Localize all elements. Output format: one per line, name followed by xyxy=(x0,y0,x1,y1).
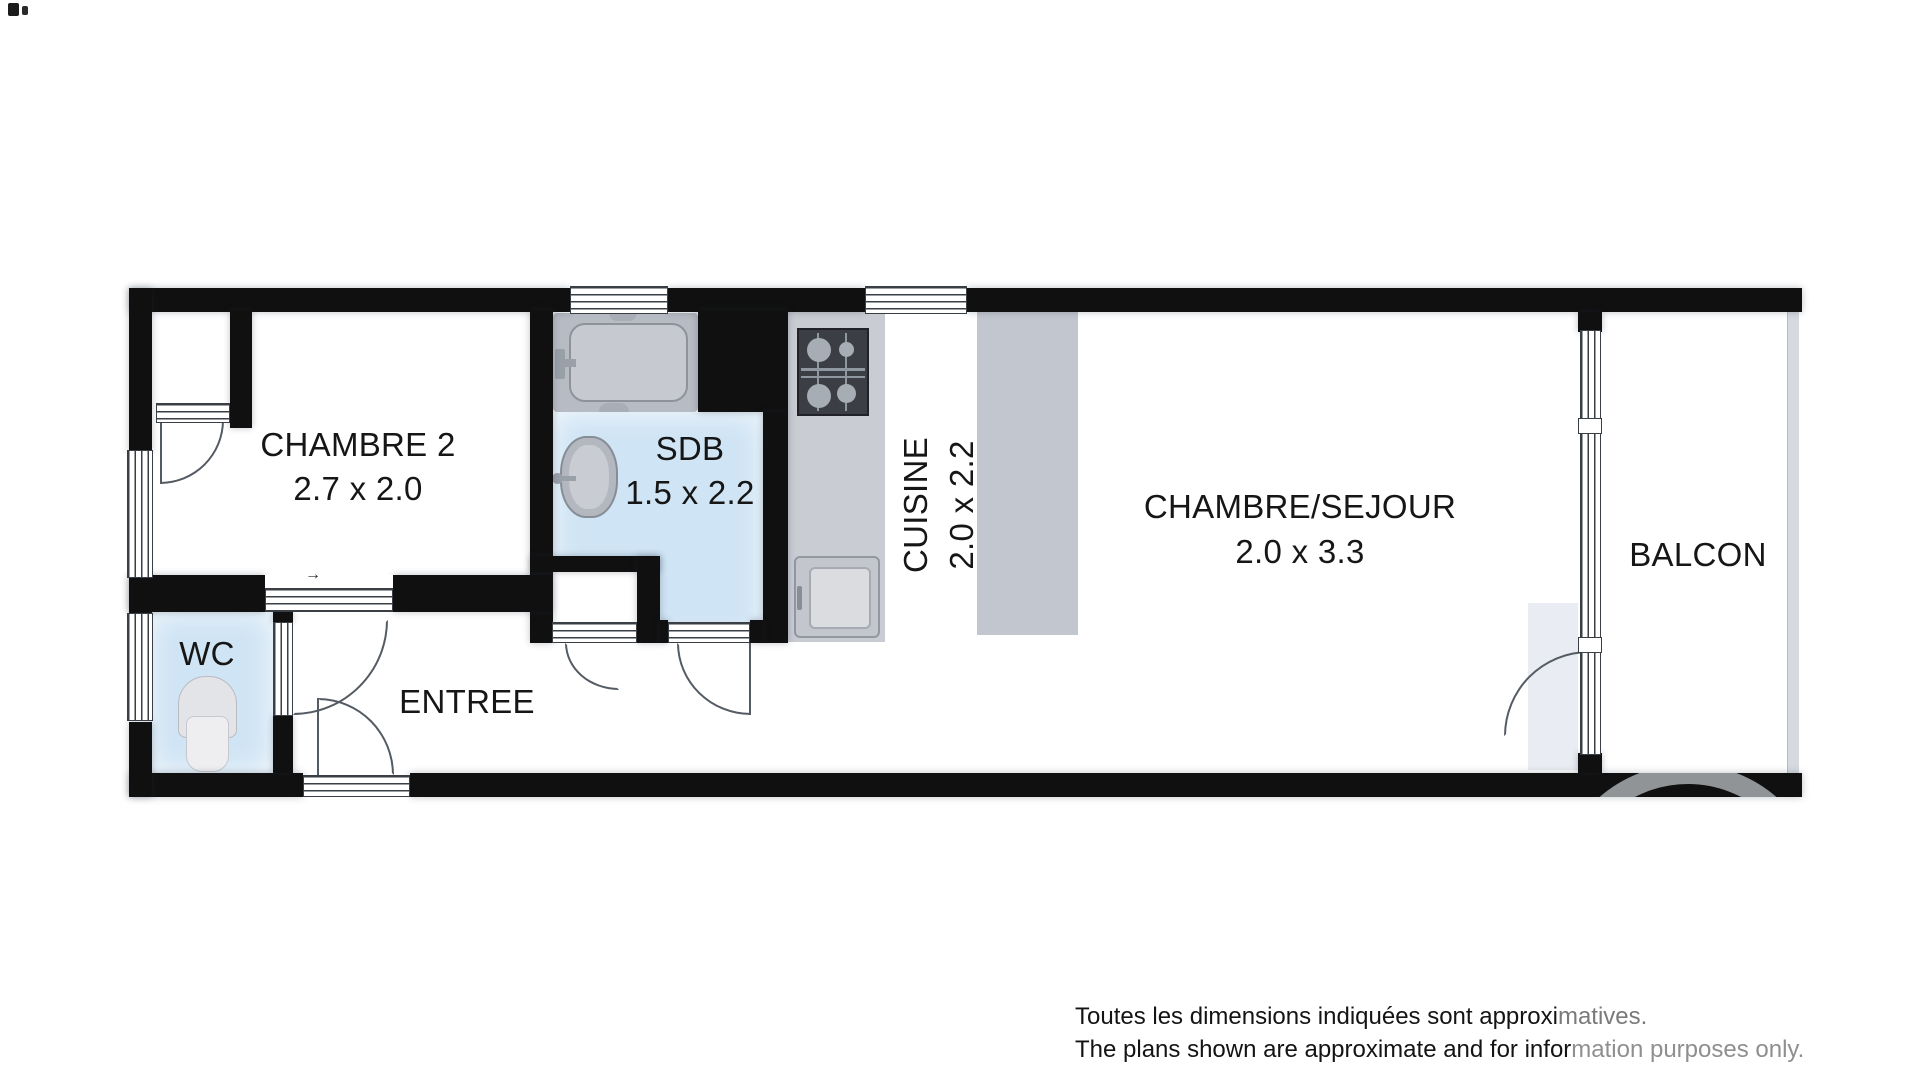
wc-door xyxy=(273,622,293,716)
room-name: CHAMBRE 2 xyxy=(183,423,533,467)
page-corner-mark xyxy=(22,6,28,15)
balcony-window-wall xyxy=(1580,330,1601,755)
watermark-logo xyxy=(1555,773,1802,797)
watermark-ring-icon xyxy=(1555,773,1802,797)
wall-segment xyxy=(1578,753,1602,773)
closet-door xyxy=(156,403,230,423)
disclaimer-text: Toutes les dimensions indiquées sont app… xyxy=(1075,1003,1558,1030)
kitchen-sink xyxy=(794,556,880,638)
bathtub-handle xyxy=(609,313,637,321)
wall-segment xyxy=(637,556,660,643)
wall-segment xyxy=(668,288,865,312)
sink-tap xyxy=(560,476,576,481)
wall-segment xyxy=(230,310,252,428)
sdb-closet-floor xyxy=(552,572,637,622)
window xyxy=(570,286,668,314)
wall-segment xyxy=(393,575,552,612)
sliding-door xyxy=(265,588,393,612)
stove-burner xyxy=(807,338,831,362)
bathtub-basin xyxy=(569,323,688,402)
stove-burner xyxy=(839,342,854,357)
window xyxy=(127,450,153,578)
bathtub-handle xyxy=(599,403,629,412)
page-corner-mark xyxy=(8,3,19,16)
disclaimer-text-faded: matives. xyxy=(1558,1003,1647,1030)
door-leaf xyxy=(749,643,751,715)
sdb-door xyxy=(668,622,750,643)
disclaimer: Toutes les dimensions indiquées sont app… xyxy=(1075,1000,1804,1066)
room-label-balcon: BALCON xyxy=(1608,533,1788,577)
sliding-door-arrow-icon: → xyxy=(296,566,330,584)
wall-segment xyxy=(273,612,293,622)
room-label-cuisine: CUISINE xyxy=(896,425,936,585)
closet-door xyxy=(552,622,637,643)
stove xyxy=(797,328,869,416)
room-label-sejour: CHAMBRE/SEJOUR 2.0 x 3.3 xyxy=(1120,484,1480,574)
kitchen-sink-basin xyxy=(809,567,871,629)
kitchen-sink-handle xyxy=(797,586,802,610)
room-label-chambre2: CHAMBRE 2 2.7 x 2.0 xyxy=(183,423,533,511)
room-name: CHAMBRE/SEJOUR xyxy=(1120,484,1480,529)
wall-segment xyxy=(273,716,293,773)
window-jamb xyxy=(1578,637,1602,653)
stove-burner xyxy=(807,384,831,408)
bathtub-faucet xyxy=(562,359,576,367)
door-leaf xyxy=(317,698,319,775)
room-name: SDB xyxy=(610,427,770,471)
stove-burner xyxy=(837,384,856,403)
wall-segment xyxy=(129,288,152,452)
wall-segment xyxy=(129,773,303,797)
room-label-cuisine-dimensions: 2.0 x 2.2 xyxy=(942,425,982,585)
toilet-bowl xyxy=(186,716,229,772)
wall-segment xyxy=(1578,312,1602,332)
wardrobe xyxy=(977,312,1078,635)
wall-segment xyxy=(129,575,265,612)
balcony-rail xyxy=(1787,312,1799,773)
bathtub xyxy=(553,313,698,412)
disclaimer-line-en: The plans shown are approximate and for … xyxy=(1075,1033,1804,1066)
wall-segment xyxy=(698,310,788,412)
disclaimer-text: The plans shown are approximate and for … xyxy=(1075,1036,1571,1063)
stove-grid-line xyxy=(801,368,865,371)
room-dimensions: 2.0 x 3.3 xyxy=(1120,529,1480,574)
room-dimensions: 2.7 x 2.0 xyxy=(183,467,533,511)
disclaimer-text-faded: mation purposes only. xyxy=(1571,1036,1804,1063)
disclaimer-line-fr: Toutes les dimensions indiquées sont app… xyxy=(1075,1000,1804,1033)
window xyxy=(865,286,967,314)
window-jamb xyxy=(1578,418,1602,434)
stove-grid-line xyxy=(801,376,865,378)
entrance-door-threshold xyxy=(303,775,410,797)
wall-segment xyxy=(967,288,1802,312)
room-label-wc: WC xyxy=(157,632,257,676)
floor-plan: CHAMBRE 2 2.7 x 2.0 SDB 1.5 x 2.2 CUISIN… xyxy=(0,0,1920,1080)
room-label-sdb: SDB 1.5 x 2.2 xyxy=(610,427,770,515)
room-label-entree: ENTREE xyxy=(377,680,557,724)
wall-segment xyxy=(660,620,668,643)
door-leaf xyxy=(160,420,162,484)
wall-segment xyxy=(129,288,570,312)
wall-segment xyxy=(129,722,152,797)
room-dimensions: 1.5 x 2.2 xyxy=(610,471,770,515)
wall-segment xyxy=(750,620,763,643)
window xyxy=(127,613,153,721)
